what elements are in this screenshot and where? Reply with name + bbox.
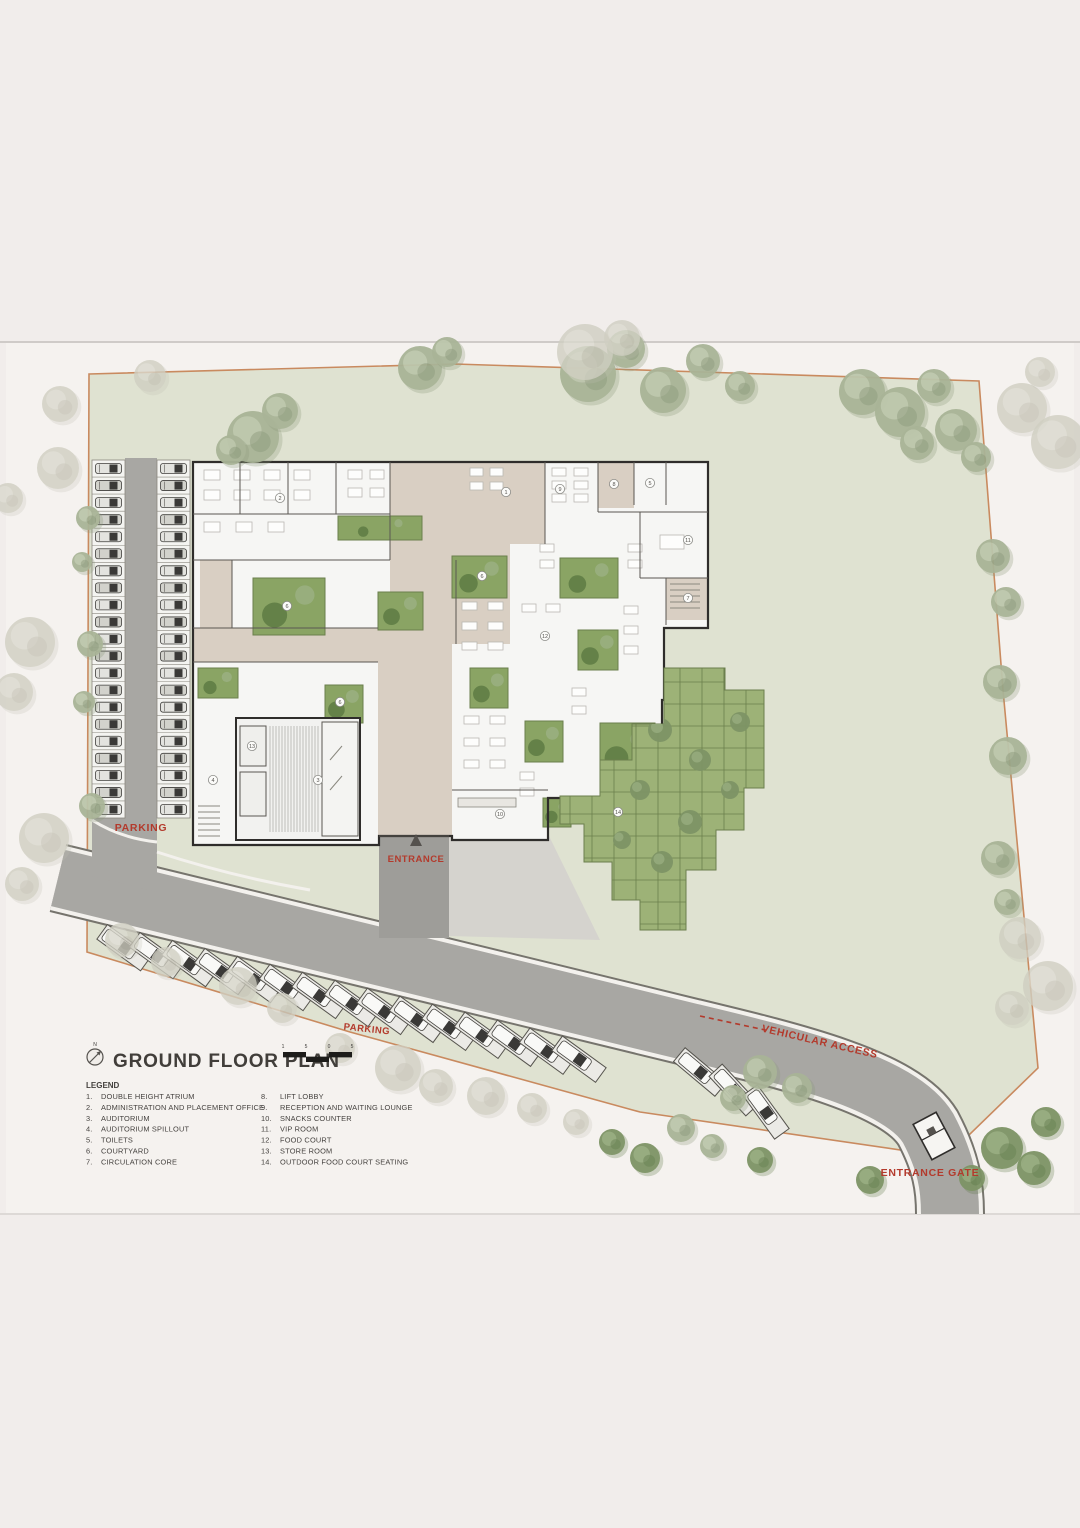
car-icon — [161, 685, 187, 695]
furniture-table — [522, 604, 536, 612]
furniture-table — [660, 535, 684, 549]
furniture-table — [264, 470, 280, 480]
furniture-table — [624, 646, 638, 654]
car-icon — [161, 566, 187, 576]
svg-text:9: 9 — [558, 487, 561, 493]
room-number-marker: 14 — [613, 807, 622, 816]
furniture-table — [470, 468, 483, 476]
car-icon — [96, 719, 122, 729]
svg-text:6: 6 — [480, 574, 483, 580]
room-number-marker: 5 — [645, 478, 654, 487]
north-letter: N — [93, 1042, 97, 1048]
entrance-gate-label: ENTRANCE GATE — [881, 1167, 980, 1179]
furniture-table — [552, 468, 566, 476]
furniture-table — [488, 642, 503, 650]
svg-text:TOILETS: TOILETS — [101, 1136, 133, 1145]
svg-text:13: 13 — [249, 744, 255, 750]
furniture-table — [490, 716, 505, 724]
car-icon — [161, 600, 187, 610]
car-icon — [96, 566, 122, 576]
furniture-table — [520, 772, 534, 780]
svg-text:10: 10 — [497, 812, 503, 818]
auditorium — [236, 718, 360, 840]
furniture-table — [490, 738, 505, 746]
furniture-table — [490, 468, 503, 476]
svg-text:8: 8 — [612, 482, 615, 488]
tree-icon — [581, 647, 599, 665]
furniture-table — [552, 494, 566, 502]
snacks-counter — [458, 798, 516, 807]
furniture-table — [520, 788, 534, 796]
furniture-table — [234, 470, 250, 480]
car-icon — [161, 515, 187, 525]
tree-icon — [692, 752, 703, 763]
svg-text:DOUBLE HEIGHT ATRIUM: DOUBLE HEIGHT ATRIUM — [101, 1092, 195, 1101]
svg-text:13.: 13. — [261, 1147, 272, 1156]
tree-icon — [484, 561, 498, 575]
legend-heading: LEGEND — [86, 1081, 120, 1090]
west-toilet-block — [200, 560, 232, 628]
courtyard — [525, 721, 563, 762]
car-icon — [96, 549, 122, 559]
scale-seg-2 — [306, 1057, 329, 1062]
svg-text:7.: 7. — [86, 1157, 93, 1166]
car-icon — [96, 685, 122, 695]
courtyard — [338, 516, 422, 540]
svg-text:RECEPTION AND WAITING LOUNGE: RECEPTION AND WAITING LOUNGE — [280, 1103, 413, 1112]
car-icon — [161, 498, 187, 508]
room-number-marker: 11 — [683, 535, 692, 544]
svg-text:6.: 6. — [86, 1147, 93, 1156]
svg-text:SNACKS COUNTER: SNACKS COUNTER — [280, 1114, 352, 1123]
room-number-marker: 3 — [313, 775, 322, 784]
car-icon — [161, 549, 187, 559]
furniture-table — [540, 544, 554, 552]
furniture-table — [464, 716, 479, 724]
svg-text:4.: 4. — [86, 1125, 93, 1134]
tree-icon — [346, 690, 359, 703]
scale-tick-1: 5 — [305, 1044, 308, 1050]
furniture-table — [294, 490, 310, 500]
car-icon — [96, 736, 122, 746]
svg-text:12.: 12. — [261, 1136, 272, 1145]
tree-icon — [723, 783, 732, 792]
furniture-table — [572, 688, 586, 696]
legend-item: 12.FOOD COURT — [261, 1136, 332, 1145]
tree-icon — [404, 597, 417, 610]
tree-icon — [473, 686, 490, 703]
tree-icon — [732, 714, 742, 724]
car-icon — [161, 464, 187, 474]
svg-text:ADMINISTRATION AND PLACEMENT O: ADMINISTRATION AND PLACEMENT OFFICE — [101, 1103, 264, 1112]
legend-item: 14.OUTDOOR FOOD COURT SEATING — [261, 1157, 408, 1166]
car-icon — [96, 481, 122, 491]
room-number-marker: 7 — [683, 593, 692, 602]
tree-icon — [654, 854, 665, 865]
svg-text:1: 1 — [504, 490, 507, 496]
furniture-table — [204, 490, 220, 500]
furniture-table — [370, 488, 384, 497]
svg-text:5.: 5. — [86, 1136, 93, 1145]
entrance-label: ENTRANCE — [388, 854, 445, 865]
scale-seg-1 — [283, 1052, 306, 1057]
svg-text:2: 2 — [278, 496, 281, 502]
furniture-table — [462, 602, 477, 610]
car-icon — [96, 668, 122, 678]
scale-tick-2: 0 — [328, 1044, 331, 1050]
tree-icon — [491, 674, 504, 687]
car-icon — [161, 770, 187, 780]
car-icon — [161, 719, 187, 729]
tree-icon — [528, 739, 545, 756]
furniture-table — [294, 470, 310, 480]
tree-icon — [681, 813, 693, 825]
tree-icon — [383, 608, 400, 625]
svg-text:AUDITORIUM: AUDITORIUM — [101, 1114, 150, 1123]
furniture-table — [464, 738, 479, 746]
furniture-table — [574, 494, 588, 502]
legend-item: 4.AUDITORIUM SPILLOUT — [86, 1125, 190, 1134]
tree-icon — [632, 782, 642, 792]
svg-text:4: 4 — [211, 778, 214, 784]
furniture-table — [488, 602, 503, 610]
furniture-table — [348, 488, 362, 497]
room-number-marker: 6 — [282, 601, 291, 610]
legend-item: 9.RECEPTION AND WAITING LOUNGE — [261, 1103, 413, 1112]
furniture-table — [490, 482, 503, 490]
furniture-table — [488, 622, 503, 630]
tree-icon — [615, 833, 624, 842]
car-icon — [96, 464, 122, 474]
courtyard — [578, 630, 618, 670]
car-icon — [161, 481, 187, 491]
tree-icon — [569, 575, 587, 593]
svg-text:7: 7 — [686, 596, 689, 602]
car-icon — [96, 498, 122, 508]
room-number-marker: 6 — [335, 697, 344, 706]
scale-tick-3: 5 — [351, 1044, 354, 1050]
svg-text:14.: 14. — [261, 1157, 272, 1166]
legend-item: 2.ADMINISTRATION AND PLACEMENT OFFICE — [86, 1103, 264, 1112]
svg-text:5: 5 — [648, 481, 651, 487]
car-icon — [96, 532, 122, 542]
car-icon — [96, 600, 122, 610]
car-icon — [96, 702, 122, 712]
tree-icon — [295, 585, 314, 604]
svg-text:9.: 9. — [261, 1103, 268, 1112]
courtyard — [378, 592, 423, 630]
room-number-marker: 4 — [208, 775, 217, 784]
tree-icon — [459, 574, 477, 592]
car-icon — [161, 532, 187, 542]
car-icon — [161, 702, 187, 712]
svg-text:8.: 8. — [261, 1092, 268, 1101]
car-icon — [96, 770, 122, 780]
svg-text:CIRCULATION CORE: CIRCULATION CORE — [101, 1157, 177, 1166]
legend-item: 1.DOUBLE HEIGHT ATRIUM — [86, 1092, 195, 1101]
furniture-table — [204, 470, 220, 480]
furniture-table — [540, 560, 554, 568]
entrance-circulation — [378, 644, 452, 836]
furniture-table — [348, 470, 362, 479]
svg-text:COURTYARD: COURTYARD — [101, 1147, 149, 1156]
furniture-table — [574, 468, 588, 476]
tree-icon — [600, 635, 614, 649]
scale-seg-3 — [329, 1052, 352, 1057]
tree-icon — [595, 563, 609, 577]
courtyard — [560, 558, 618, 598]
furniture-table — [546, 604, 560, 612]
tree-icon — [203, 681, 216, 694]
furniture-table — [370, 470, 384, 479]
room-number-marker: 8 — [609, 479, 618, 488]
furniture-table — [464, 760, 479, 768]
furniture-table — [462, 622, 477, 630]
tree-icon — [394, 519, 402, 527]
svg-text:VIP ROOM: VIP ROOM — [280, 1125, 318, 1134]
scale-tick-0: 1 — [282, 1044, 285, 1050]
parking-aisle — [125, 458, 157, 818]
svg-text:STORE ROOM: STORE ROOM — [280, 1147, 332, 1156]
furniture-table — [624, 626, 638, 634]
parking-label-left: PARKING — [115, 822, 168, 834]
tree-icon — [222, 672, 232, 682]
svg-text:12: 12 — [542, 634, 548, 640]
furniture-table — [204, 522, 220, 532]
svg-text:2.: 2. — [86, 1103, 93, 1112]
car-icon — [161, 634, 187, 644]
room-number-marker: 6 — [477, 571, 486, 580]
svg-text:6: 6 — [285, 604, 288, 610]
svg-text:14: 14 — [615, 810, 621, 816]
tree-icon — [358, 526, 369, 537]
svg-text:OUTDOOR FOOD COURT SEATING: OUTDOOR FOOD COURT SEATING — [280, 1157, 408, 1166]
room-number-marker: 12 — [540, 631, 549, 640]
svg-text:6: 6 — [338, 700, 341, 706]
furniture-table — [234, 490, 250, 500]
side-room — [240, 772, 266, 816]
room-number-marker: 9 — [555, 484, 564, 493]
furniture-table — [624, 606, 638, 614]
car-icon — [161, 668, 187, 678]
entrance-walkway — [379, 836, 449, 938]
room-number-marker: 1 — [501, 487, 510, 496]
room-number-marker: 13 — [247, 741, 256, 750]
legend-item: 11.VIP ROOM — [261, 1125, 318, 1134]
courtyard — [470, 668, 508, 708]
svg-text:3.: 3. — [86, 1114, 93, 1123]
furniture-table — [462, 642, 477, 650]
svg-text:11.: 11. — [261, 1125, 271, 1134]
car-icon — [96, 753, 122, 763]
furniture-table — [470, 482, 483, 490]
legend-item: 13.STORE ROOM — [261, 1147, 332, 1156]
car-icon — [161, 583, 187, 593]
furniture-table — [490, 760, 505, 768]
ground-floor-plan-drawing: 123456667891011121314 PARKING PARKING EN… — [0, 0, 1080, 1528]
car-icon — [161, 753, 187, 763]
room-number-marker: 2 — [275, 493, 284, 502]
room-number-marker: 10 — [495, 809, 504, 818]
svg-text:1.: 1. — [86, 1092, 93, 1101]
furniture-table — [574, 481, 588, 489]
svg-text:LIFT LOBBY: LIFT LOBBY — [280, 1092, 324, 1101]
svg-text:11: 11 — [685, 538, 691, 544]
car-icon — [161, 736, 187, 746]
car-icon — [161, 651, 187, 661]
car-icon — [161, 617, 187, 627]
furniture-table — [236, 522, 252, 532]
svg-text:AUDITORIUM SPILLOUT: AUDITORIUM SPILLOUT — [101, 1125, 190, 1134]
courtyard — [198, 668, 238, 698]
furniture-table — [572, 706, 586, 714]
car-icon — [161, 787, 187, 797]
car-icon — [161, 804, 187, 814]
tree-icon — [546, 727, 559, 740]
svg-text:10.: 10. — [261, 1114, 272, 1123]
svg-text:3: 3 — [316, 778, 319, 784]
furniture-table — [268, 522, 284, 532]
svg-text:FOOD COURT: FOOD COURT — [280, 1136, 332, 1145]
car-icon — [96, 617, 122, 627]
car-icon — [96, 583, 122, 593]
